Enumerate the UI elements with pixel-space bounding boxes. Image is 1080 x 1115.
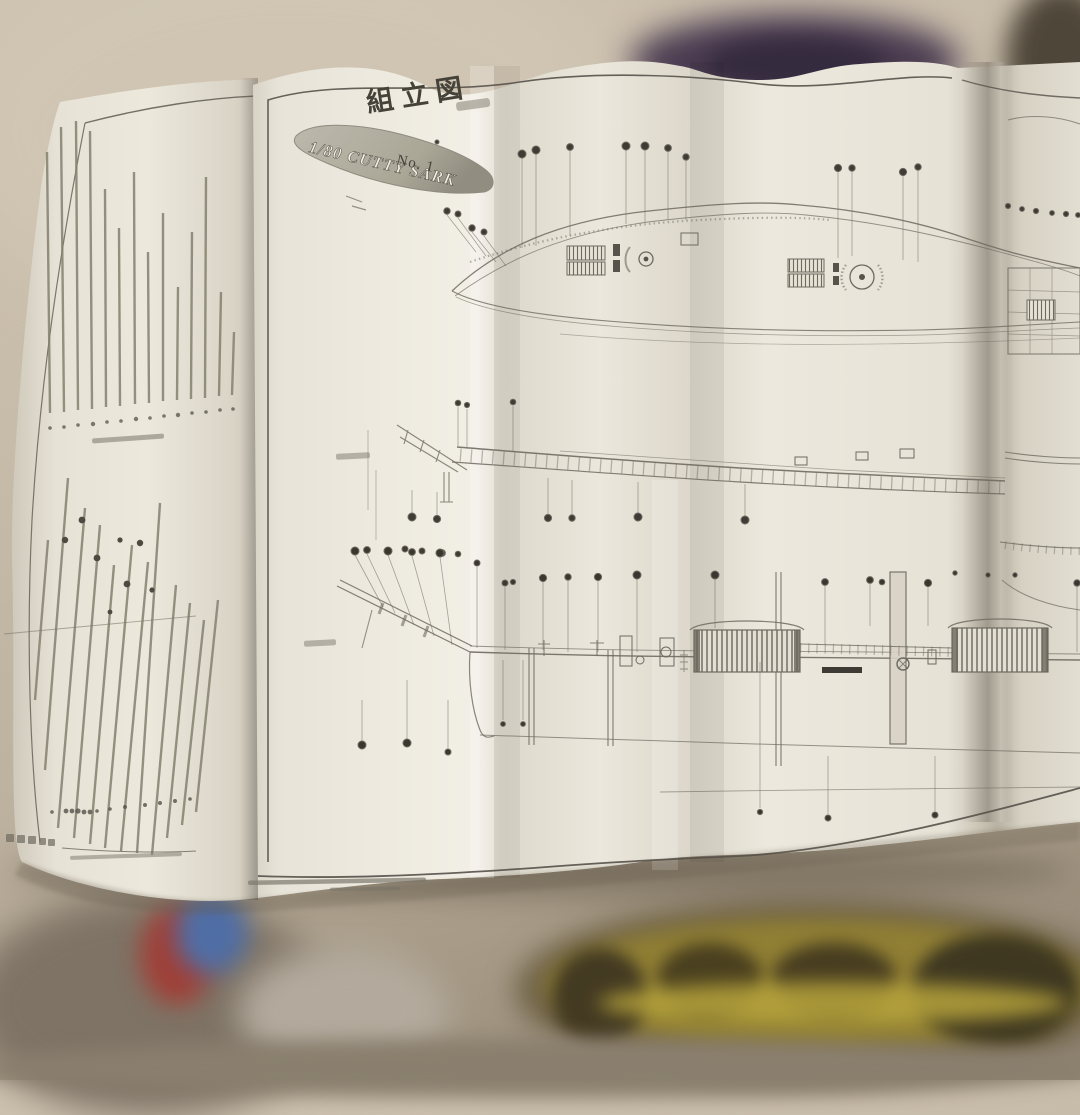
left-sheet [4, 78, 258, 901]
plan-photo: 組立図 1/80 CUTTY SARK No. 1 [0, 0, 1080, 1080]
fold-crease-highlight-2 [652, 480, 678, 870]
fold-valley [962, 62, 1014, 822]
main-sheet: 組立図 1/80 CUTTY SARK No. 1 [248, 61, 1080, 898]
fold-crease-shadow [494, 66, 520, 878]
